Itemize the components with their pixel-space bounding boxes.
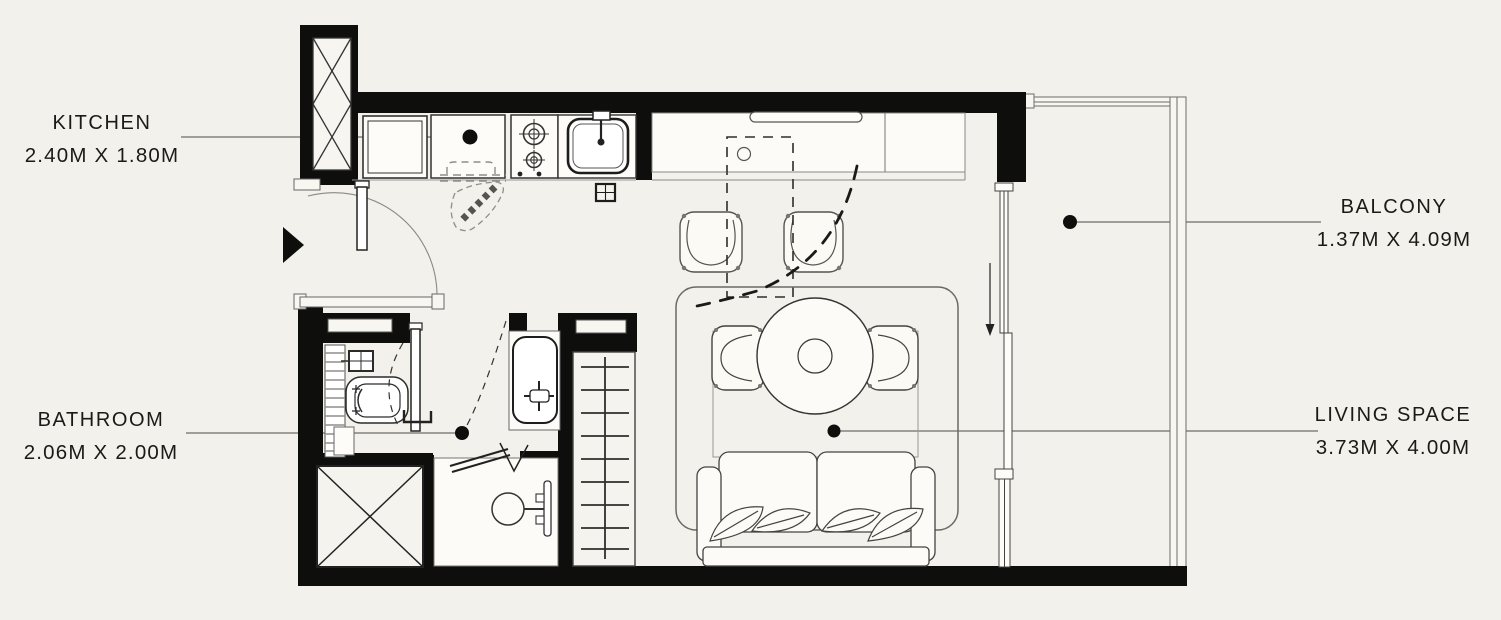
round-table-icon xyxy=(757,298,873,414)
balcony-railing xyxy=(1024,94,1186,567)
entry-arrow-icon xyxy=(283,227,304,263)
shaft-bottom-icon xyxy=(317,466,423,567)
kitchen-cabinet xyxy=(431,115,505,178)
bathroom-dot xyxy=(455,426,469,440)
vanity-sink-icon xyxy=(509,331,560,430)
armchair-right-icon xyxy=(866,326,918,390)
toilet-icon xyxy=(341,351,408,423)
living-dot xyxy=(828,425,841,438)
kitchen-dot xyxy=(463,130,478,145)
fridge-icon xyxy=(363,116,427,178)
armchair-left-icon xyxy=(712,326,764,390)
bathroom-label: BATHROOM 2.06M X 2.00M xyxy=(20,409,182,465)
floor-drain-icon xyxy=(596,184,615,201)
kitchen-dimensions: 2.40M X 1.80M xyxy=(25,144,180,168)
floor-plan-page: KITCHEN 2.40M X 1.80M BATHROOM 2.06M X 2… xyxy=(0,0,1501,620)
floor-plan-drawing xyxy=(0,0,1501,620)
bar-stools xyxy=(680,212,843,272)
wall-niches xyxy=(328,319,626,333)
bathroom-dimensions: 2.06M X 2.00M xyxy=(24,441,179,465)
balcony-name: BALCONY xyxy=(1341,196,1448,219)
counter-desk xyxy=(652,112,965,180)
sliding-door xyxy=(986,183,1014,567)
entry-door xyxy=(294,179,437,296)
balcony-label: BALCONY 1.37M X 4.09M xyxy=(1316,196,1472,252)
stove-icon xyxy=(511,115,558,178)
living-space-name: LIVING SPACE xyxy=(1315,404,1472,427)
shelf-icon xyxy=(750,112,862,122)
bathroom-front-partition xyxy=(294,294,444,309)
shower-icon xyxy=(434,443,558,566)
balcony-dimensions: 1.37M X 4.09M xyxy=(1317,228,1472,252)
kitchen-sink-icon xyxy=(558,111,636,178)
bar-stool-icon xyxy=(680,212,742,272)
bathroom-door-swing-dashed xyxy=(466,321,506,427)
living-space-label: LIVING SPACE 3.73M X 4.00M xyxy=(1314,404,1472,460)
wardrobe xyxy=(573,352,635,566)
shaft-top-icon xyxy=(313,38,351,170)
balcony-dot xyxy=(1063,215,1077,229)
living-space-dimensions: 3.73M X 4.00M xyxy=(1316,436,1471,460)
kitchen-name: KITCHEN xyxy=(53,112,152,135)
bathroom-name: BATHROOM xyxy=(38,409,165,432)
kitchen-label: KITCHEN 2.40M X 1.80M xyxy=(22,112,182,168)
sofa-icon xyxy=(697,452,935,566)
